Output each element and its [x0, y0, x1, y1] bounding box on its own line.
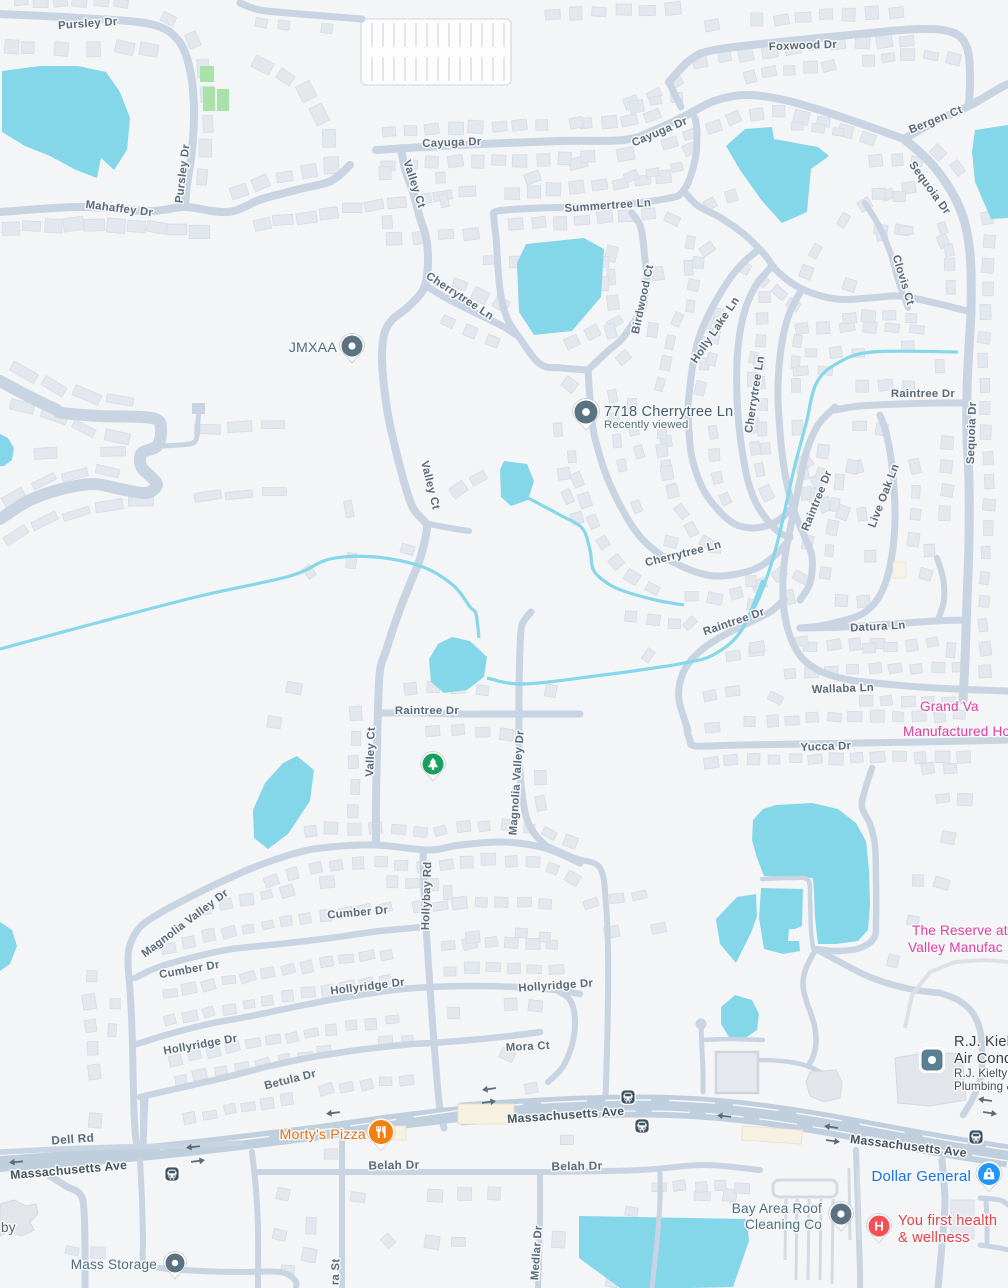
svg-text:Valley Manufac: Valley Manufac — [908, 940, 1003, 955]
svg-text:The Reserve at: The Reserve at — [912, 923, 1008, 938]
svg-text:Recently viewed: Recently viewed — [604, 419, 688, 431]
svg-text:Dell Rd: Dell Rd — [51, 1131, 95, 1148]
svg-text:Air Condi: Air Condi — [954, 1051, 1008, 1067]
svg-text:Cayuga Dr: Cayuga Dr — [422, 136, 482, 150]
svg-text:Manufactured Ho: Manufactured Ho — [903, 724, 1008, 739]
svg-text:Cleaning Co: Cleaning Co — [745, 1217, 822, 1232]
svg-text:Foxwood Dr: Foxwood Dr — [769, 39, 838, 53]
svg-text:Morty's Pizza: Morty's Pizza — [279, 1127, 366, 1143]
svg-text:Sequoia Dr: Sequoia Dr — [965, 401, 979, 464]
svg-text:& wellness: & wellness — [898, 1230, 970, 1246]
svg-text:Plumbing &: Plumbing & — [954, 1080, 1008, 1093]
svg-text:Grand Va: Grand Va — [920, 699, 979, 714]
svg-text:Raintree Dr: Raintree Dr — [395, 705, 460, 717]
svg-text:Wallaba Ln: Wallaba Ln — [812, 682, 875, 696]
svg-text:7718 Cherrytree Ln: 7718 Cherrytree Ln — [604, 404, 733, 420]
svg-text:Bay Area Roof: Bay Area Roof — [732, 1201, 822, 1216]
svg-text:Hollybay Rd: Hollybay Rd — [420, 861, 434, 930]
svg-text:You first health: You first health — [898, 1213, 997, 1229]
svg-text:R.J. Kielty: R.J. Kielty — [954, 1067, 1007, 1080]
svg-text:R.J. Kielty: R.J. Kielty — [954, 1034, 1008, 1050]
svg-text:Belah Dr: Belah Dr — [368, 1158, 419, 1173]
svg-text:Mass Storage: Mass Storage — [71, 1257, 157, 1272]
svg-text:Yucca Dr: Yucca Dr — [800, 740, 851, 754]
svg-text:Dollar General: Dollar General — [871, 1168, 971, 1185]
svg-text:Raintree Dr: Raintree Dr — [891, 388, 956, 400]
svg-text:ra St: ra St — [330, 1258, 343, 1285]
svg-text:by: by — [1, 1220, 16, 1235]
svg-text:Valley Ct: Valley Ct — [364, 727, 378, 777]
svg-text:Belah Dr: Belah Dr — [551, 1159, 602, 1174]
svg-text:H: H — [874, 1219, 883, 1234]
svg-text:JMXAA: JMXAA — [289, 340, 338, 356]
svg-text:Mora Ct: Mora Ct — [505, 1040, 550, 1054]
